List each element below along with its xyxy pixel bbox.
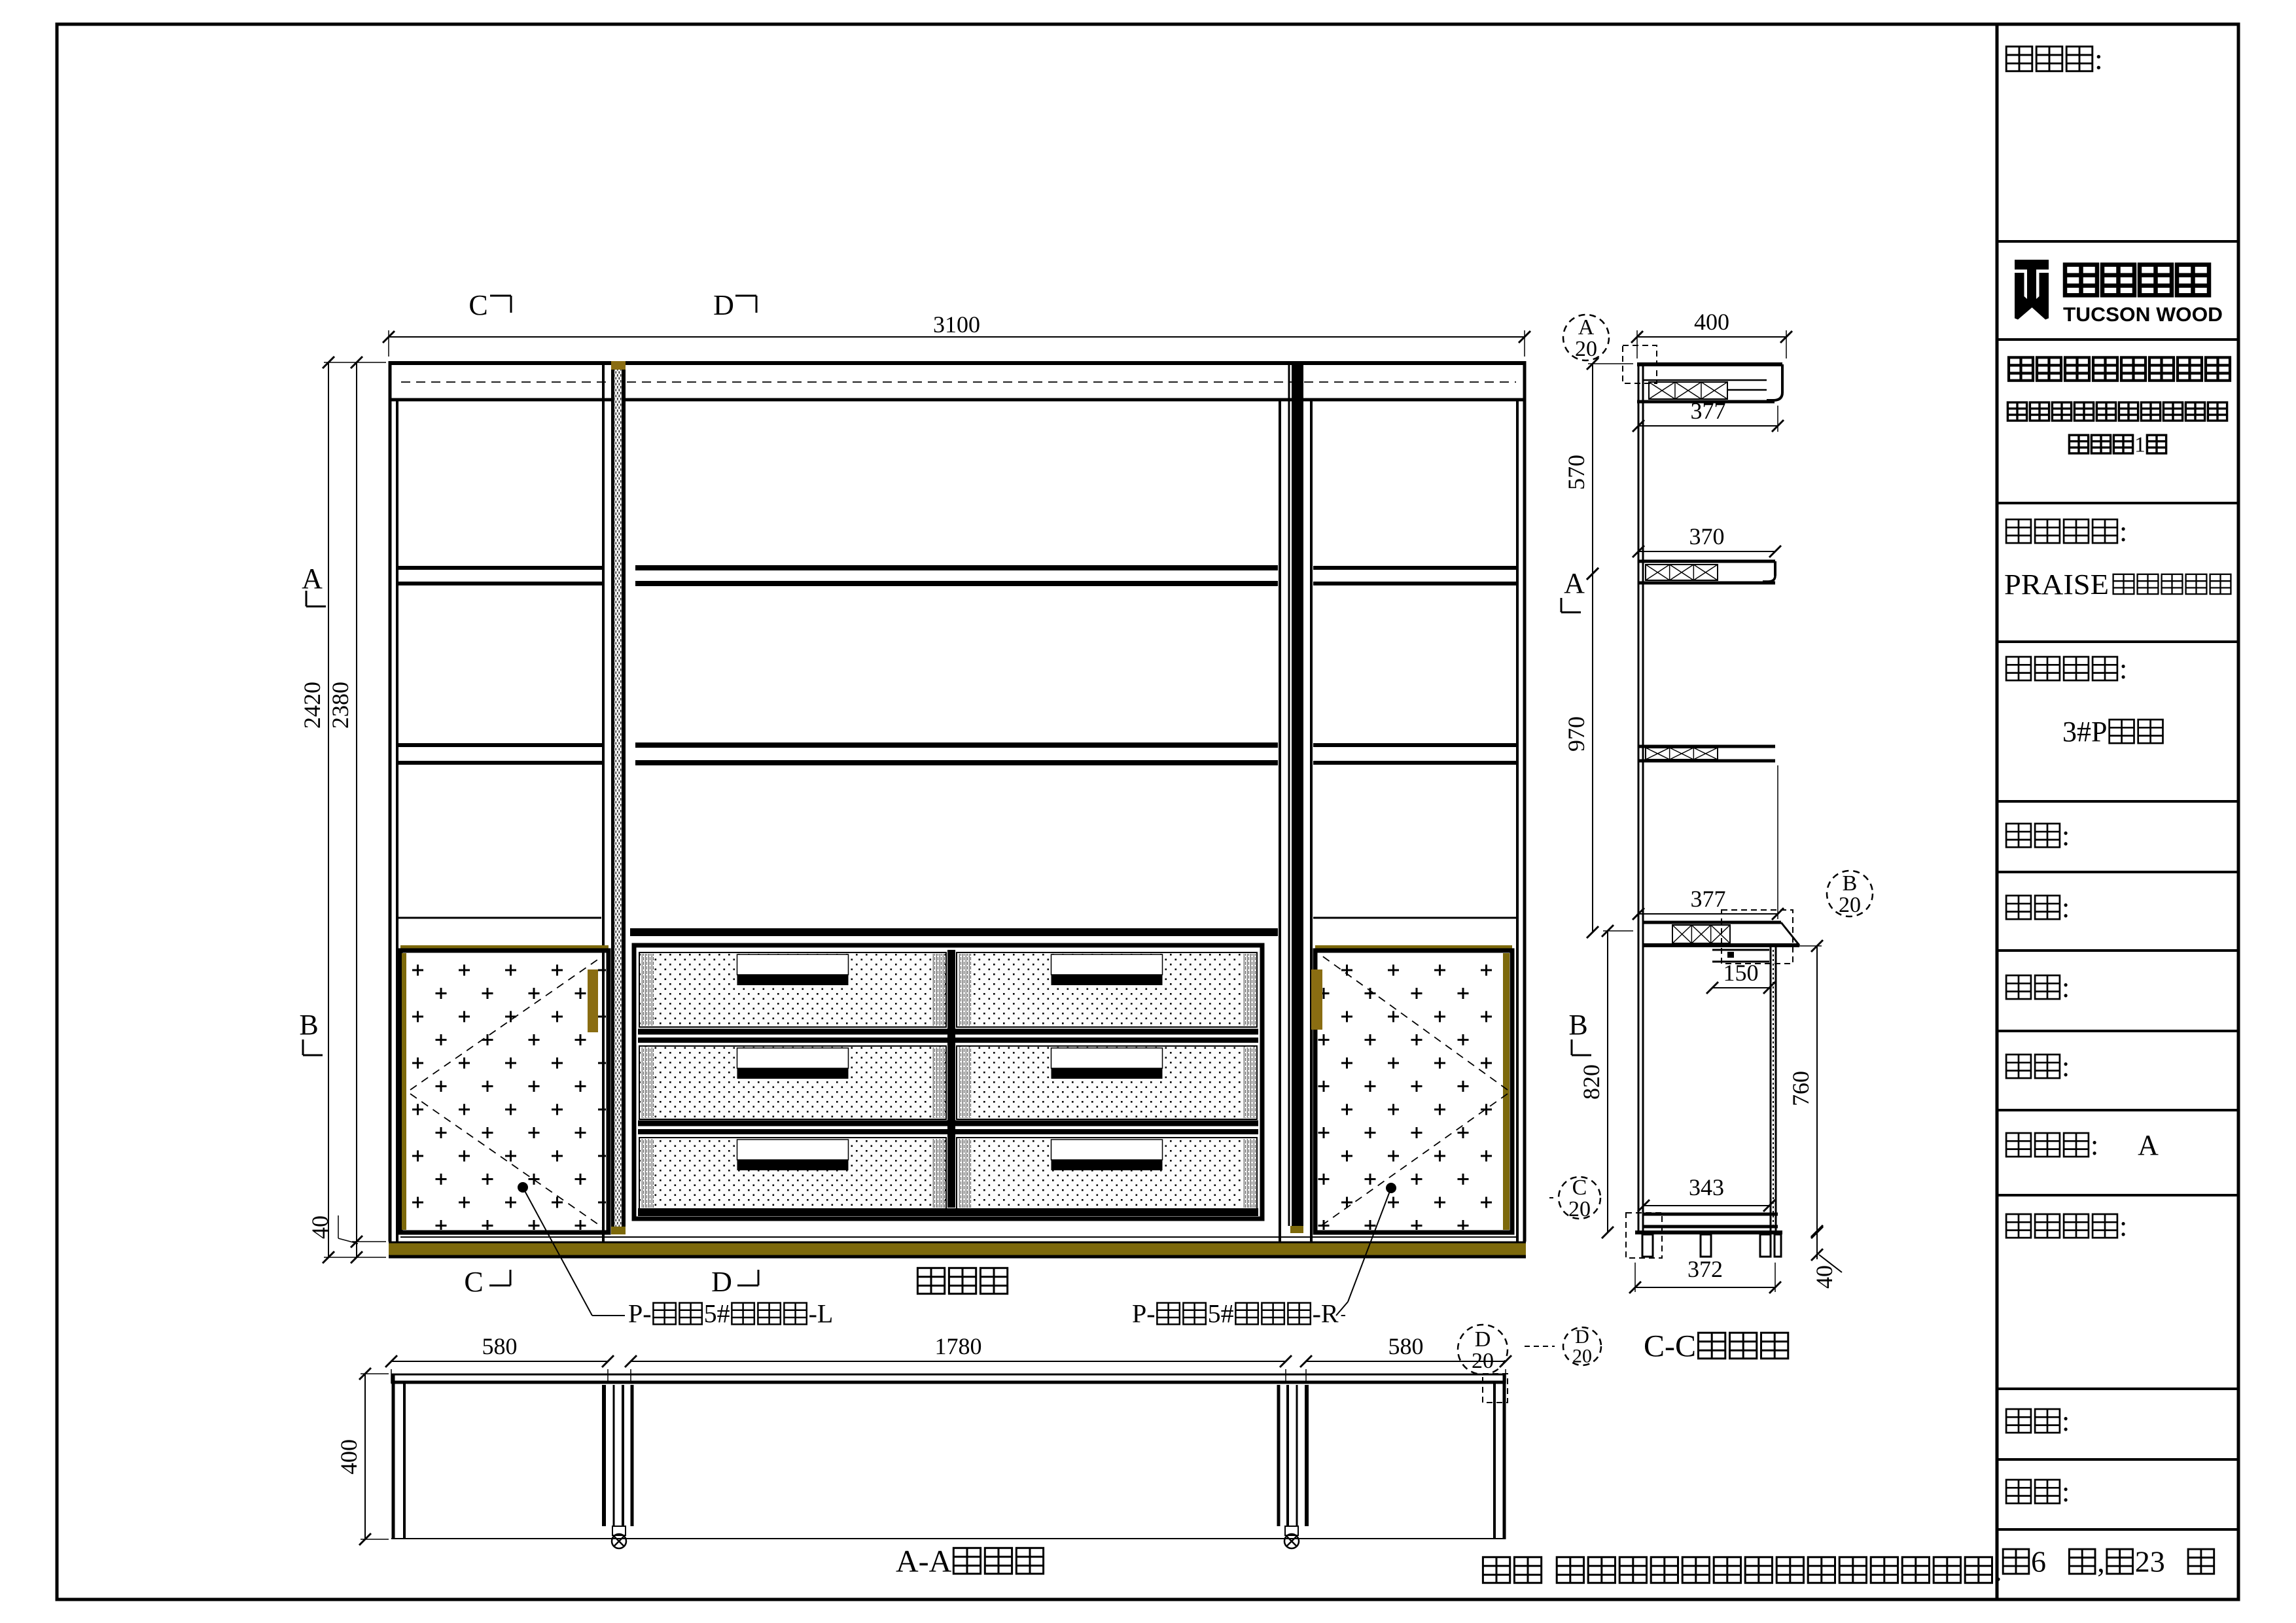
svg-text:6: 6	[2031, 1545, 2046, 1579]
svg-text::: :	[2062, 1476, 2070, 1508]
svg-text:2380: 2380	[327, 682, 353, 729]
svg-text:400: 400	[336, 1439, 362, 1475]
svg-text:1780: 1780	[935, 1333, 982, 1359]
svg-text::: :	[2119, 1210, 2127, 1242]
svg-text::: :	[2119, 653, 2127, 685]
svg-text:B: B	[299, 1009, 318, 1041]
svg-text:A: A	[1578, 315, 1595, 340]
svg-text:570: 570	[1563, 455, 1589, 490]
svg-text::: :	[2062, 1051, 2070, 1083]
svg-text:400: 400	[1694, 309, 1729, 335]
svg-text::: :	[2062, 1405, 2070, 1437]
svg-text:20: 20	[1839, 893, 1861, 917]
svg-text:3100: 3100	[933, 311, 980, 338]
svg-text:P-: P-	[1132, 1299, 1156, 1329]
svg-text:D: D	[1575, 1326, 1589, 1348]
svg-text:A: A	[302, 563, 323, 595]
svg-text:-L: -L	[809, 1299, 834, 1329]
svg-text:A-A: A-A	[896, 1544, 952, 1579]
svg-text:D: D	[1475, 1327, 1491, 1352]
svg-text:D: D	[711, 1266, 732, 1298]
svg-text:820: 820	[1578, 1064, 1604, 1100]
svg-text:5#: 5#	[704, 1299, 730, 1329]
svg-text:.: .	[1994, 1553, 2002, 1588]
svg-text:23: 23	[2135, 1545, 2165, 1579]
svg-text:D: D	[713, 289, 734, 321]
svg-text:377: 377	[1691, 886, 1726, 912]
svg-text:20: 20	[1472, 1349, 1494, 1373]
svg-text:A: A	[2138, 1129, 2159, 1161]
svg-text::: :	[2062, 820, 2070, 852]
svg-text:5#: 5#	[1208, 1299, 1234, 1329]
svg-text:370: 370	[1689, 523, 1725, 550]
svg-text:B: B	[1568, 1009, 1587, 1041]
svg-text:20: 20	[1575, 337, 1597, 361]
svg-text:760: 760	[1788, 1071, 1814, 1106]
svg-text::: :	[2119, 515, 2127, 548]
svg-text:40: 40	[307, 1215, 333, 1239]
svg-text:C: C	[1572, 1176, 1587, 1200]
svg-text:20: 20	[1572, 1346, 1592, 1367]
svg-text::: :	[2062, 892, 2070, 924]
svg-text:C: C	[464, 1266, 483, 1298]
svg-text::: :	[2062, 971, 2070, 1003]
svg-text:C-C: C-C	[1644, 1329, 1696, 1363]
svg-text:PRAISE: PRAISE	[2004, 568, 2109, 601]
svg-text:P-: P-	[628, 1299, 652, 1329]
svg-text:343: 343	[1689, 1174, 1724, 1200]
svg-text:150: 150	[1723, 960, 1759, 986]
svg-text:TUCSON WOOD: TUCSON WOOD	[2063, 303, 2223, 326]
svg-text:970: 970	[1563, 716, 1589, 752]
svg-text::: :	[2091, 1129, 2098, 1161]
svg-text:580: 580	[1388, 1333, 1424, 1359]
svg-text:372: 372	[1687, 1256, 1723, 1282]
svg-text::: :	[2094, 43, 2103, 76]
svg-text:20: 20	[1568, 1197, 1591, 1221]
svg-text:580: 580	[482, 1333, 518, 1359]
svg-text:B: B	[1843, 871, 1858, 896]
svg-text:-R: -R	[1313, 1299, 1339, 1329]
svg-text:377: 377	[1691, 398, 1726, 424]
svg-text:A: A	[1564, 567, 1585, 599]
svg-text:3#P: 3#P	[2062, 716, 2107, 748]
svg-text:1: 1	[2134, 433, 2146, 457]
svg-text:C: C	[468, 289, 487, 321]
svg-text:,: ,	[2097, 1545, 2105, 1579]
svg-text:2420: 2420	[299, 682, 325, 729]
svg-text:40: 40	[1811, 1265, 1837, 1289]
